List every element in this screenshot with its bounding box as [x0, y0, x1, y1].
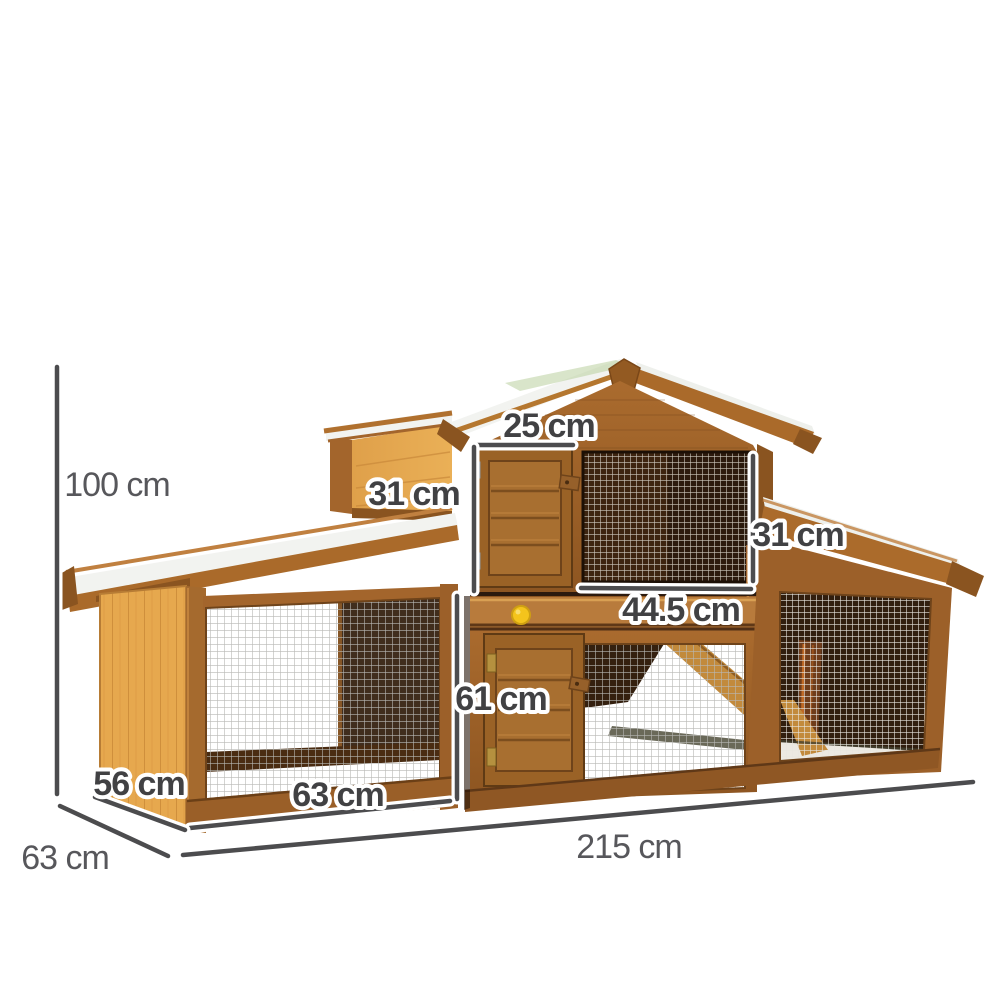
dim-label-upper-window-width: 44.5 cm [622, 591, 740, 629]
dim-label-total-height: 100 cm [64, 466, 170, 504]
product-dimension-diagram: 100 cm 25 cm 31 cm 31 cm 44.5 cm 61 cm 6… [0, 0, 1000, 1000]
dim-label-lower-door-height: 61 cm [455, 680, 546, 718]
dim-left-box-depth: 56 cm [93, 765, 185, 830]
upper-door [471, 448, 580, 587]
lower-door-hinge-top [487, 654, 496, 672]
hutch-dimension-illustration: 100 cm 25 cm 31 cm 31 cm 44.5 cm 61 cm 6… [0, 0, 1000, 1000]
nest-box-left-post [330, 437, 352, 514]
upper-door-latch [559, 475, 580, 491]
lower-door-hinge-bottom [487, 748, 496, 766]
dim-label-left-box-depth: 56 cm [93, 765, 184, 803]
left-roof-tip [60, 566, 78, 610]
dim-label-left-run-width: 63 cm [292, 776, 383, 814]
dim-label-upper-door-width: 25 cm [503, 407, 594, 445]
dim-label-upper-door-height: 31 cm [368, 475, 459, 513]
dim-label-overall-width: 215 cm [576, 828, 682, 866]
dim-label-upper-window-height: 31 cm [752, 516, 843, 554]
door-knob [512, 606, 530, 624]
dim-label-overall-depth: 63 cm [21, 839, 109, 877]
upper-mesh-window [583, 452, 750, 582]
lower-door-latch [569, 677, 590, 692]
